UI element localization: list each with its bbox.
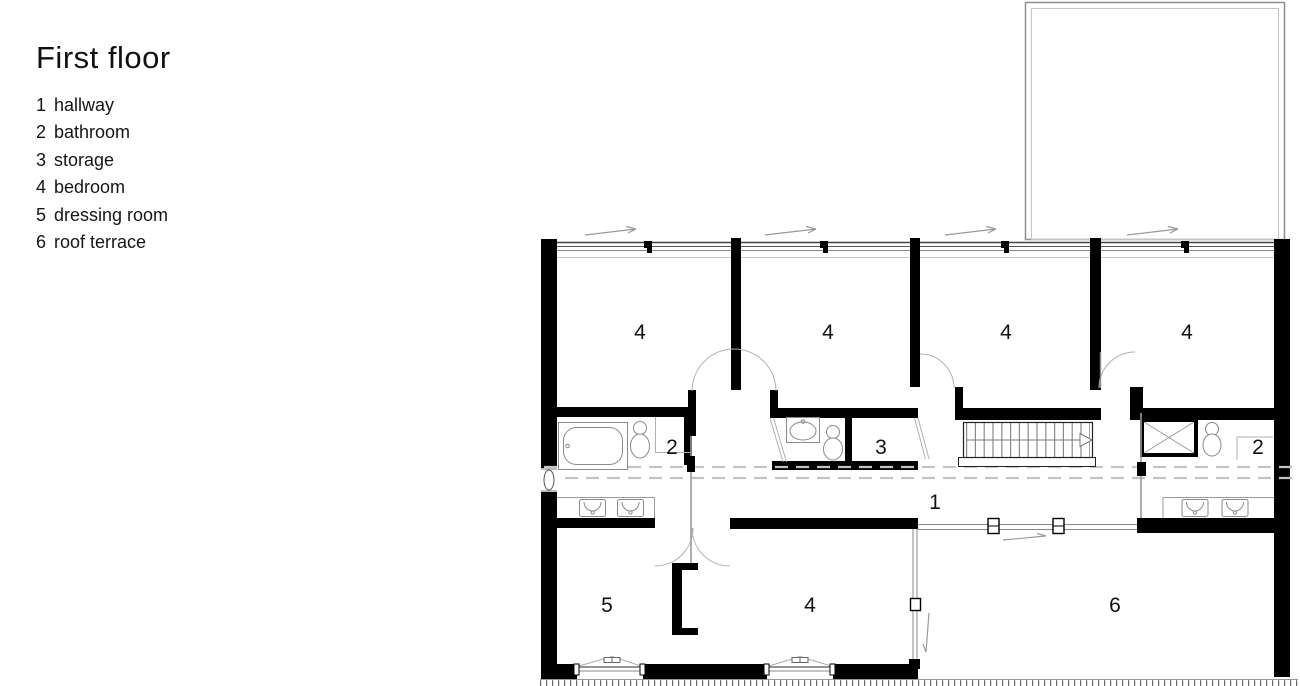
room-label-storage: 3 <box>875 436 887 459</box>
sink <box>618 500 644 517</box>
room-label-bedroom-2: 4 <box>822 321 834 344</box>
room-label-roof-terrace: 6 <box>1109 594 1121 617</box>
vanity-right <box>1163 498 1274 519</box>
double-door-swing <box>655 528 693 566</box>
sliding-arrow-icon <box>585 227 1178 236</box>
ground-hatch <box>540 680 1298 684</box>
sliding-arrow-icon <box>923 613 929 652</box>
door-swing <box>920 354 954 388</box>
sink <box>1182 500 1208 517</box>
toilet <box>824 426 843 461</box>
sink <box>787 418 820 443</box>
room-label-bedroom-bottom: 4 <box>804 594 816 617</box>
toilet <box>1203 423 1221 457</box>
floor-plan-page: First floor 1hallway 2bathroom 3storage … <box>0 0 1300 686</box>
hallway-guide-lines <box>544 467 1297 478</box>
sliding-arrow-icon <box>1003 534 1046 541</box>
room-label-bathroom-right: 2 <box>1252 436 1264 459</box>
sink <box>1222 500 1248 517</box>
terrace-glass-walls <box>909 519 1137 670</box>
walls <box>541 238 1290 680</box>
room-label-bedroom-4: 4 <box>1181 321 1193 344</box>
stairs <box>959 423 1096 467</box>
shower <box>1142 420 1196 455</box>
bathtub <box>559 423 628 470</box>
room-label-hallway: 1 <box>929 491 941 514</box>
vanity-left <box>557 498 655 519</box>
stair-direction-arrow-icon <box>967 434 1092 447</box>
toilet <box>631 422 650 459</box>
room-label-bedroom-3: 4 <box>1000 321 1012 344</box>
floor-plan-drawing: 4 4 4 4 2 3 2 1 5 4 6 <box>0 0 1300 686</box>
upper-terrace-outline <box>1026 3 1285 240</box>
room-label-bedroom-1: 4 <box>634 321 646 344</box>
room-label-bathroom-left: 2 <box>666 436 678 459</box>
sink <box>580 500 606 517</box>
mullion-icon <box>988 519 1064 534</box>
wall-column-symbol <box>540 468 558 492</box>
door-swing <box>1099 352 1135 388</box>
window <box>764 657 835 676</box>
room-label-dressing-room: 5 <box>601 594 613 617</box>
window <box>574 657 645 676</box>
double-door-swing <box>692 528 730 566</box>
